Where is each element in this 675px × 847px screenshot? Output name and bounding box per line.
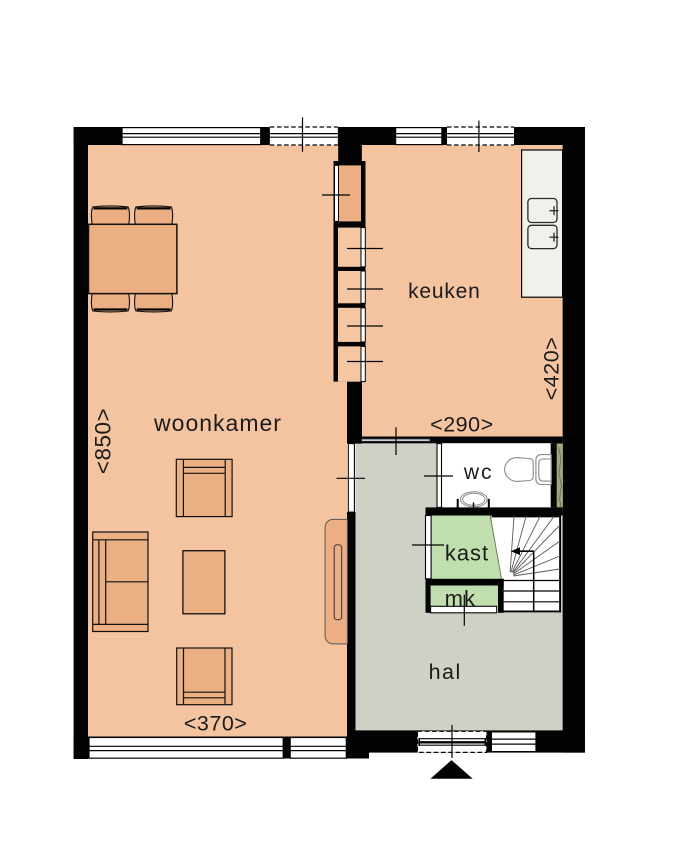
- svg-text:<420>: <420>: [540, 337, 564, 400]
- svg-text:<370>: <370>: [184, 712, 247, 736]
- svg-text:kast: kast: [445, 541, 489, 566]
- svg-text:mk: mk: [445, 586, 476, 611]
- svg-text:keuken: keuken: [408, 280, 481, 303]
- svg-text:wc: wc: [463, 461, 494, 484]
- svg-text:hal: hal: [429, 660, 462, 684]
- svg-text:<290>: <290>: [430, 413, 493, 437]
- svg-text:woonkamer: woonkamer: [153, 410, 282, 436]
- svg-text:<850>: <850>: [91, 408, 116, 474]
